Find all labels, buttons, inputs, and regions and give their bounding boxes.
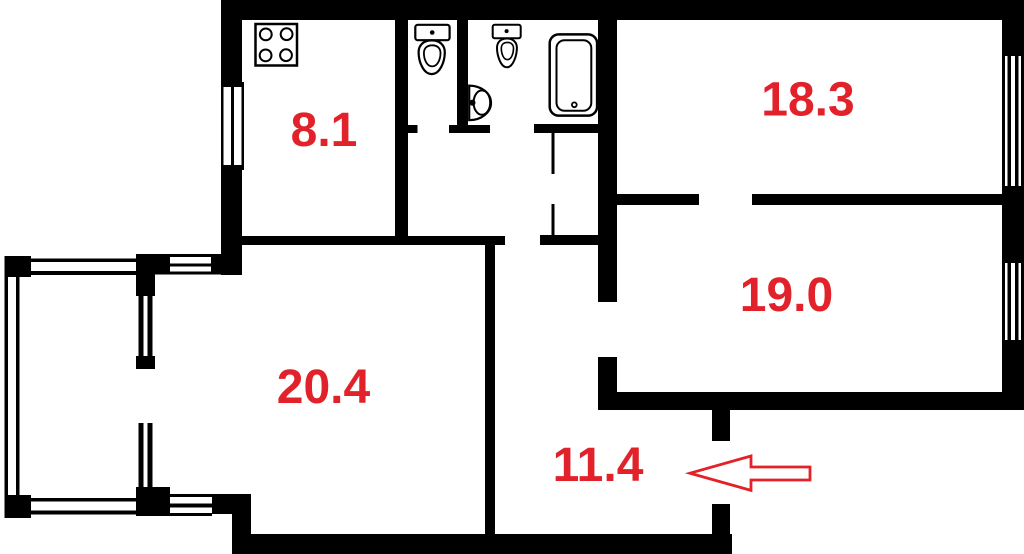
svg-text:19.0: 19.0 — [740, 269, 833, 322]
svg-text:8.1: 8.1 — [291, 104, 358, 157]
svg-text:11.4: 11.4 — [553, 439, 644, 492]
svg-text:18.3: 18.3 — [761, 74, 854, 127]
svg-text:20.4: 20.4 — [277, 361, 371, 414]
